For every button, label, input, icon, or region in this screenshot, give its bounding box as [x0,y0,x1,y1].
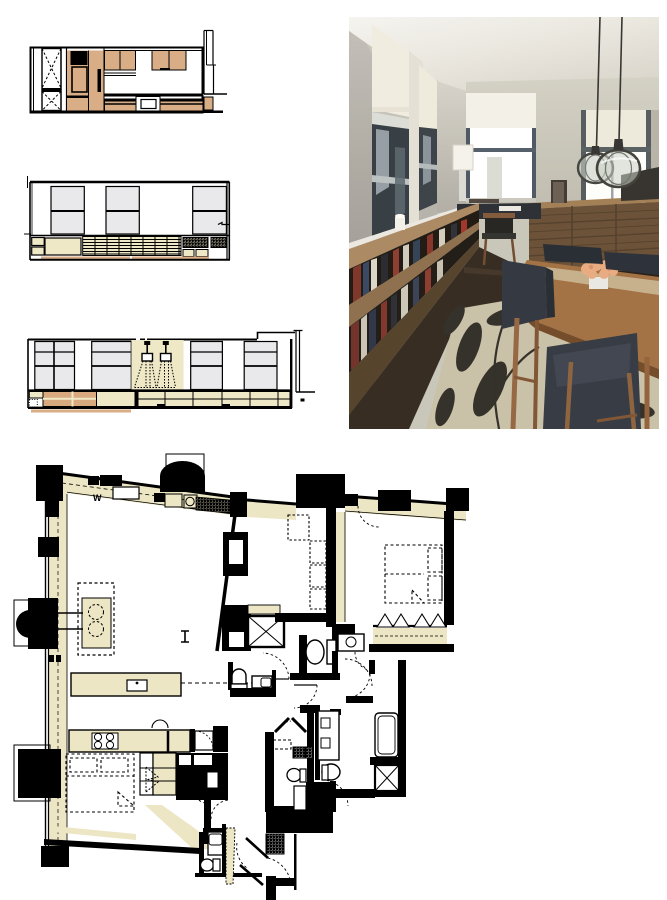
svg-text:W: W [93,493,102,503]
